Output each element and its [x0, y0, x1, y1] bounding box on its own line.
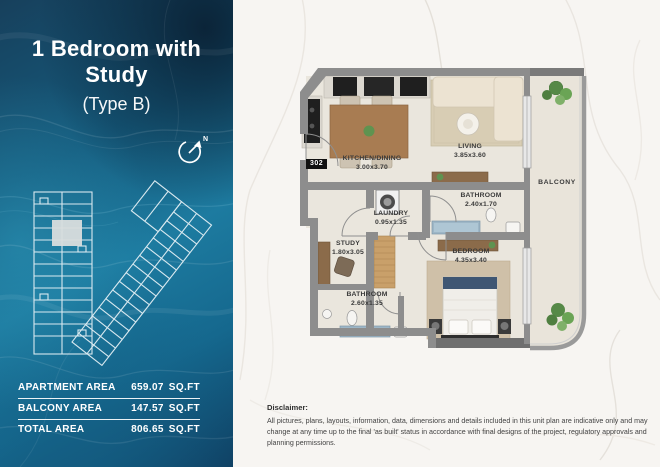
plant-icon — [437, 174, 444, 181]
bedroom-furniture — [427, 261, 511, 341]
room-label-study: STUDY 1.80x3.05 — [332, 240, 364, 258]
disclaimer: Disclaimer: All pictures, plans, layouts… — [267, 403, 649, 449]
keyplan — [16, 146, 218, 366]
highlighted-unit — [52, 220, 82, 246]
page-subtitle: (Type B) — [0, 94, 233, 115]
plant-icon — [489, 242, 496, 249]
room-label-bathroom-2: BATHROOM 2.60x1.35 — [346, 291, 387, 309]
room-label-bedroom: BEDROOM 4.35x3.40 — [453, 248, 490, 266]
page-title: 1 Bedroom with Study — [0, 36, 233, 88]
brochure-page: KITCHEN/DINING 3.00x3.70 LIVING 3.85x3.6… — [0, 0, 660, 467]
title-block: 1 Bedroom with Study (Type B) — [0, 36, 233, 115]
brand-panel: 1 Bedroom with Study (Type B) N — [0, 0, 233, 467]
living-sofa — [431, 77, 523, 146]
area-table: APARTMENT AREA 659.07 SQ.FT BALCONY AREA… — [18, 378, 200, 440]
room-label-balcony: BALCONY — [538, 179, 576, 188]
bed — [443, 277, 497, 339]
room-label-bathroom-1: BATHROOM 2.40x1.70 — [460, 192, 501, 210]
area-row-apartment: APARTMENT AREA 659.07 SQ.FT — [18, 378, 200, 399]
wardrobe — [374, 236, 395, 288]
svg-text:N: N — [203, 136, 208, 143]
unit-number-badge: 302 — [306, 159, 327, 169]
room-label-living: LIVING 3.85x3.60 — [454, 143, 486, 161]
room-label-kitchen-dining: KITCHEN/DINING 3.00x3.70 — [343, 155, 402, 173]
area-row-total: TOTAL AREA 806.65 SQ.FT — [18, 420, 200, 440]
plant-icon — [364, 126, 375, 137]
room-label-laundry: LAUNDRY 0.95x1.35 — [374, 210, 408, 228]
disclaimer-heading: Disclaimer: — [267, 403, 649, 412]
area-row-balcony: BALCONY AREA 147.57 SQ.FT — [18, 399, 200, 420]
disclaimer-body: All pictures, plans, layouts, informatio… — [267, 416, 649, 449]
